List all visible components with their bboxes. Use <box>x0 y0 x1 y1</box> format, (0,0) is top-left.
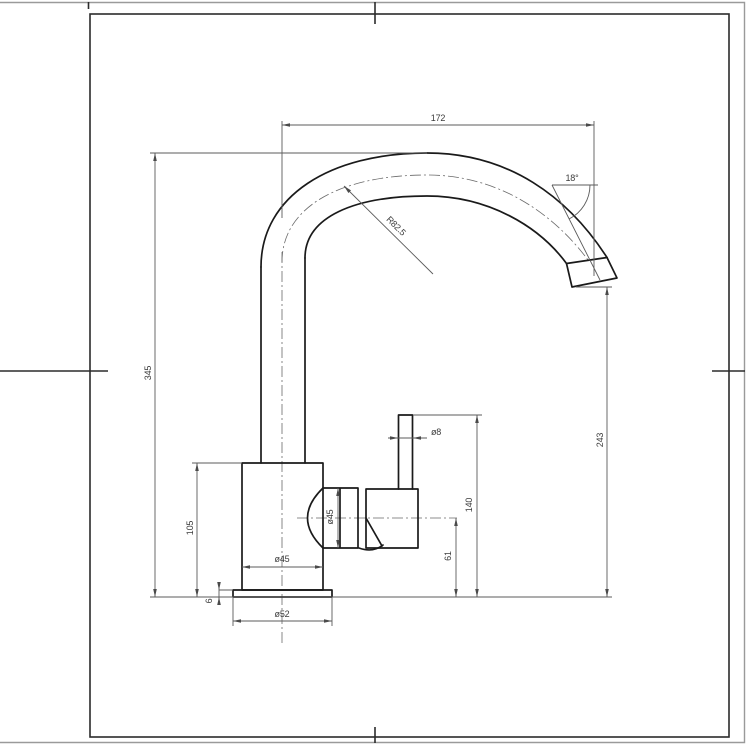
dim-label-overall-height: 345 <box>143 366 153 381</box>
lever-rod <box>399 415 413 489</box>
dimension-valve-diameter: ø45 <box>325 488 340 548</box>
dimension-body-diameter: ø45 <box>242 554 323 569</box>
body-cylinder <box>242 463 323 590</box>
dimension-handle-axis-height: 61 <box>443 518 458 597</box>
dimension-base-thickness: 6 <box>204 582 233 605</box>
dim-label-valve-diameter: ø45 <box>325 509 335 524</box>
dimension-base-diameter: ø52 <box>233 598 332 626</box>
dim-label-rod-diameter: ø8 <box>431 427 441 437</box>
faucet-dimension-drawing: 172 18° R82.5 345 243 105 140 <box>0 0 750 750</box>
dim-label-outlet-height: 243 <box>595 433 605 448</box>
spout-inner-arc <box>305 196 567 264</box>
handle-housing <box>366 489 418 548</box>
dimension-lever-height: 140 <box>413 415 482 597</box>
dim-label-body-height: 105 <box>185 521 195 536</box>
dim-label-spout-reach: 172 <box>431 113 446 123</box>
dim-label-body-diameter: ø45 <box>275 554 290 564</box>
dimension-spout-reach: 172 <box>282 113 594 276</box>
dim-label-handle-axis-height: 61 <box>443 551 453 561</box>
base-flange <box>233 590 332 597</box>
dimension-outlet-angle: 18° <box>552 173 600 280</box>
paper-edge <box>0 3 745 743</box>
dim-label-base-thickness: 6 <box>204 598 214 603</box>
dim-label-outlet-angle: 18° <box>565 173 579 183</box>
lever-base-detail <box>359 518 383 550</box>
dimension-outlet-height: 243 <box>576 287 612 597</box>
spout-outlet-tip <box>567 258 618 288</box>
dim-label-base-diameter: ø52 <box>275 609 290 619</box>
faucet-outline <box>233 153 617 597</box>
dim-label-bend-radius: R82.5 <box>384 214 407 237</box>
dimension-bend-radius: R82.5 <box>344 186 433 274</box>
dimension-rod-diameter: ø8 <box>388 427 441 440</box>
centerlines <box>282 175 588 645</box>
technical-drawing-canvas: 172 18° R82.5 345 243 105 140 <box>0 0 750 750</box>
dimension-body-height: 105 <box>185 463 242 597</box>
drawing-frame <box>0 2 745 743</box>
dim-label-lever-height: 140 <box>464 498 474 513</box>
